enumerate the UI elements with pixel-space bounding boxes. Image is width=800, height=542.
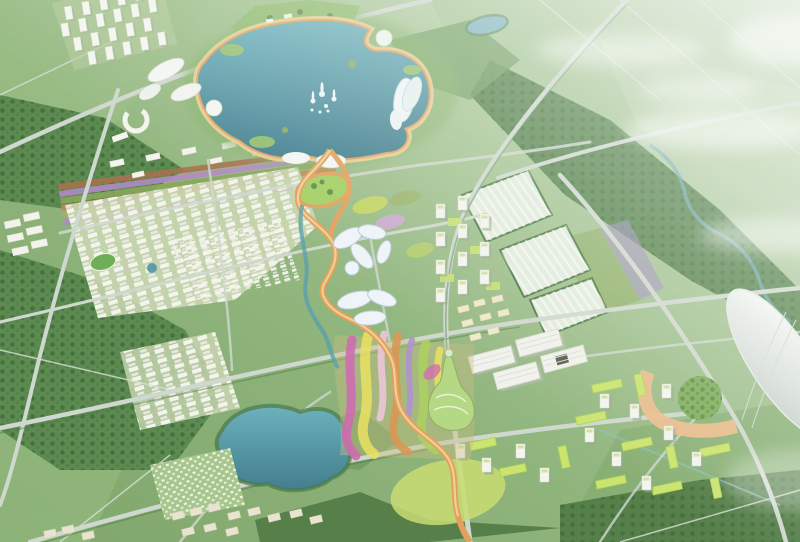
masterplan-render [0, 0, 800, 542]
